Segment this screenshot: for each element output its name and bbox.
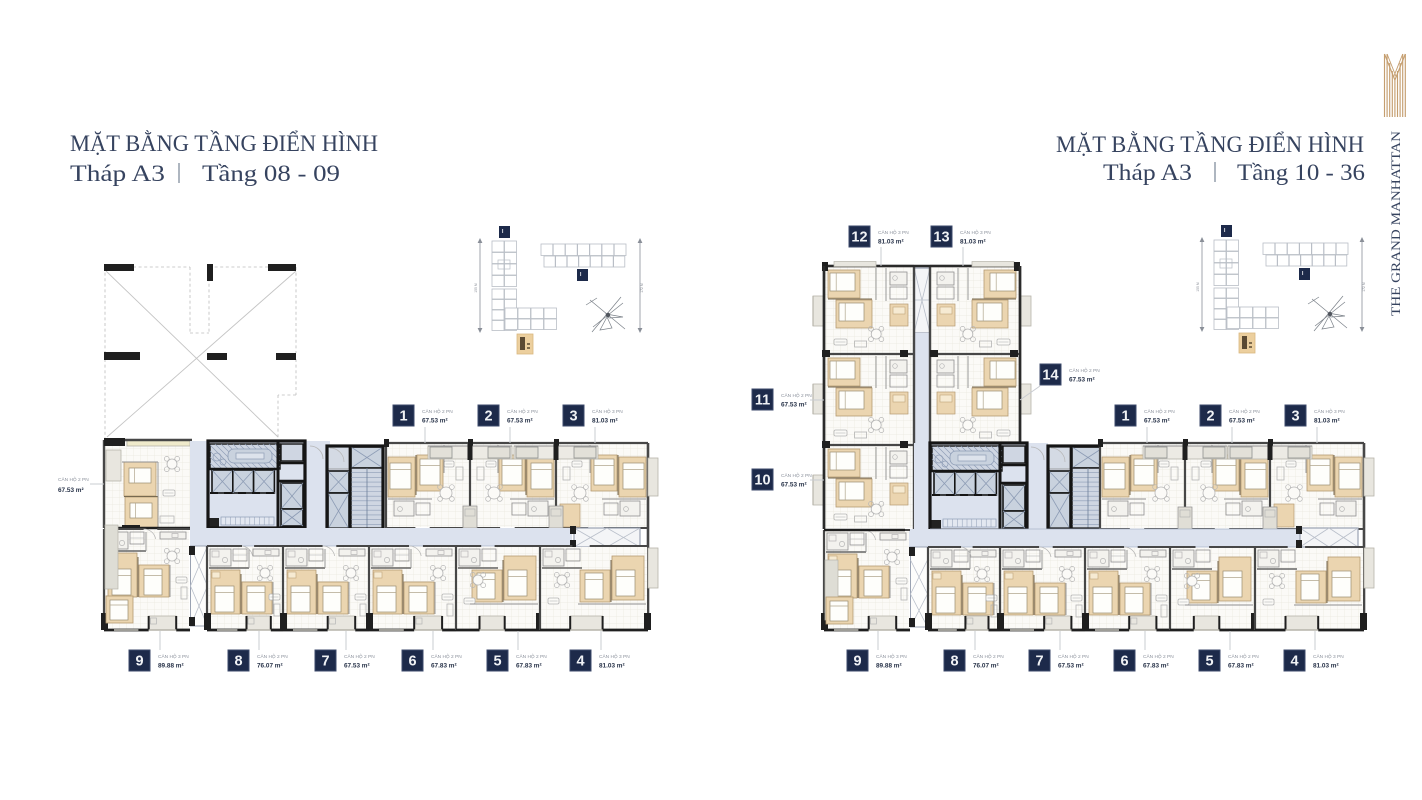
svg-text:CĂN HỘ 2 PN: CĂN HỘ 2 PN [1144,408,1175,415]
svg-text:67.53 m²: 67.53 m² [1069,377,1095,384]
svg-text:CĂN HỘ 3 PN: CĂN HỘ 3 PN [158,653,189,660]
svg-text:Tháp A3: Tháp A3 [70,161,165,187]
svg-text:CĂN HỘ 2 PN: CĂN HỘ 2 PN [1143,653,1174,660]
svg-text:CĂN HỘ 2 PN: CĂN HỘ 2 PN [973,653,1004,660]
svg-text:67.53 m²: 67.53 m² [781,482,807,489]
svg-text:14: 14 [1042,368,1058,384]
svg-text:89.88 m²: 89.88 m² [158,663,184,670]
svg-text:5: 5 [493,654,501,670]
svg-text:155 M: 155 M [474,283,478,293]
svg-text:CĂN HỘ 2 PN: CĂN HỘ 2 PN [781,472,812,479]
svg-text:MẶT BẰNG TẦNG ĐIỂN HÌNH: MẶT BẰNG TẦNG ĐIỂN HÌNH [1056,131,1364,158]
svg-text:Tầng 08 - 09: Tầng 08 - 09 [202,161,340,187]
svg-text:8: 8 [234,654,242,670]
svg-text:CĂN HỘ 2 PN: CĂN HỘ 2 PN [257,653,288,660]
svg-text:89.88 m²: 89.88 m² [876,663,902,670]
svg-text:CĂN HỘ 2 PN: CĂN HỘ 2 PN [58,476,89,483]
svg-text:81.03 m²: 81.03 m² [878,239,904,246]
svg-text:6: 6 [1120,654,1128,670]
svg-text:CĂN HỘ 3 PN: CĂN HỘ 3 PN [599,653,630,660]
svg-text:7: 7 [1035,654,1043,670]
svg-text:6: 6 [408,654,416,670]
svg-text:Tầng 10 - 36: Tầng 10 - 36 [1237,160,1365,186]
svg-text:7: 7 [321,654,329,670]
svg-text:11: 11 [755,393,770,409]
svg-text:MẶT BẰNG TẦNG ĐIỂN HÌNH: MẶT BẰNG TẦNG ĐIỂN HÌNH [70,130,378,157]
svg-text:67.53 m²: 67.53 m² [422,418,448,425]
svg-text:3: 3 [569,409,577,425]
svg-text:76.07 m²: 76.07 m² [973,663,999,670]
svg-text:CĂN HỘ 2 PN: CĂN HỘ 2 PN [344,653,375,660]
svg-text:81.03 m²: 81.03 m² [599,663,625,670]
svg-text:67.53 m²: 67.53 m² [1229,418,1255,425]
svg-text:67.53 m²: 67.53 m² [58,487,84,494]
svg-text:10: 10 [754,473,770,489]
svg-text:CĂN HỘ 2 PN: CĂN HỘ 2 PN [507,408,538,415]
svg-text:Tháp A3: Tháp A3 [1103,160,1192,186]
svg-text:3: 3 [1291,409,1299,425]
svg-text:1: 1 [1121,409,1129,425]
svg-text:CĂN HỘ 3 PN: CĂN HỘ 3 PN [1313,653,1344,660]
svg-text:2: 2 [484,409,492,425]
svg-text:CĂN HỘ 2 PN: CĂN HỘ 2 PN [1228,653,1259,660]
svg-text:CĂN HỘ 3 PN: CĂN HỘ 3 PN [960,229,991,236]
svg-text:CĂN HỘ 2 PN: CĂN HỘ 2 PN [1058,653,1089,660]
svg-text:67.83 m²: 67.83 m² [1228,663,1254,670]
svg-text:CĂN HỘ 3 PN: CĂN HỘ 3 PN [592,408,623,415]
svg-text:67.53 m²: 67.53 m² [1058,663,1084,670]
svg-text:67.53 m²: 67.53 m² [1144,418,1170,425]
svg-text:CĂN HỘ 2 PN: CĂN HỘ 2 PN [781,392,812,399]
svg-text:9: 9 [853,654,861,670]
svg-text:67.53 m²: 67.53 m² [344,663,370,670]
svg-text:172 M: 172 M [640,283,644,293]
svg-text:155 M: 155 M [1196,282,1200,292]
svg-text:2: 2 [1206,409,1214,425]
svg-text:4: 4 [1290,654,1298,670]
svg-text:81.03 m²: 81.03 m² [592,418,618,425]
svg-text:CĂN HỘ 2 PN: CĂN HỘ 2 PN [431,653,462,660]
svg-text:67.53 m²: 67.53 m² [507,418,533,425]
svg-text:CĂN HỘ 2 PN: CĂN HỘ 2 PN [516,653,547,660]
svg-text:67.83 m²: 67.83 m² [1143,663,1169,670]
svg-text:81.03 m²: 81.03 m² [1314,418,1340,425]
svg-text:9: 9 [135,654,143,670]
svg-text:4: 4 [576,654,584,670]
svg-text:81.03 m²: 81.03 m² [1313,663,1339,670]
svg-text:67.83 m²: 67.83 m² [431,663,457,670]
svg-text:67.53 m²: 67.53 m² [781,402,807,409]
svg-text:1: 1 [399,409,407,425]
svg-text:172 M: 172 M [1362,282,1366,292]
svg-text:THE GRAND MANHATTAN: THE GRAND MANHATTAN [1388,130,1403,316]
svg-text:13: 13 [933,230,949,246]
svg-text:5: 5 [1205,654,1213,670]
svg-text:CĂN HỘ 2 PN: CĂN HỘ 2 PN [1229,408,1260,415]
svg-text:CĂN HỘ 3 PN: CĂN HỘ 3 PN [1314,408,1345,415]
svg-text:81.03 m²: 81.03 m² [960,239,986,246]
svg-text:8: 8 [950,654,958,670]
svg-text:12: 12 [851,230,867,246]
svg-text:76.07 m²: 76.07 m² [257,663,283,670]
svg-text:CĂN HỘ 2 PN: CĂN HỘ 2 PN [1069,367,1100,374]
svg-text:CĂN HỘ 3 PN: CĂN HỘ 3 PN [876,653,907,660]
svg-text:CĂN HỘ 3 PN: CĂN HỘ 3 PN [878,229,909,236]
svg-text:CĂN HỘ 2 PN: CĂN HỘ 2 PN [422,408,453,415]
svg-text:67.83 m²: 67.83 m² [516,663,542,670]
